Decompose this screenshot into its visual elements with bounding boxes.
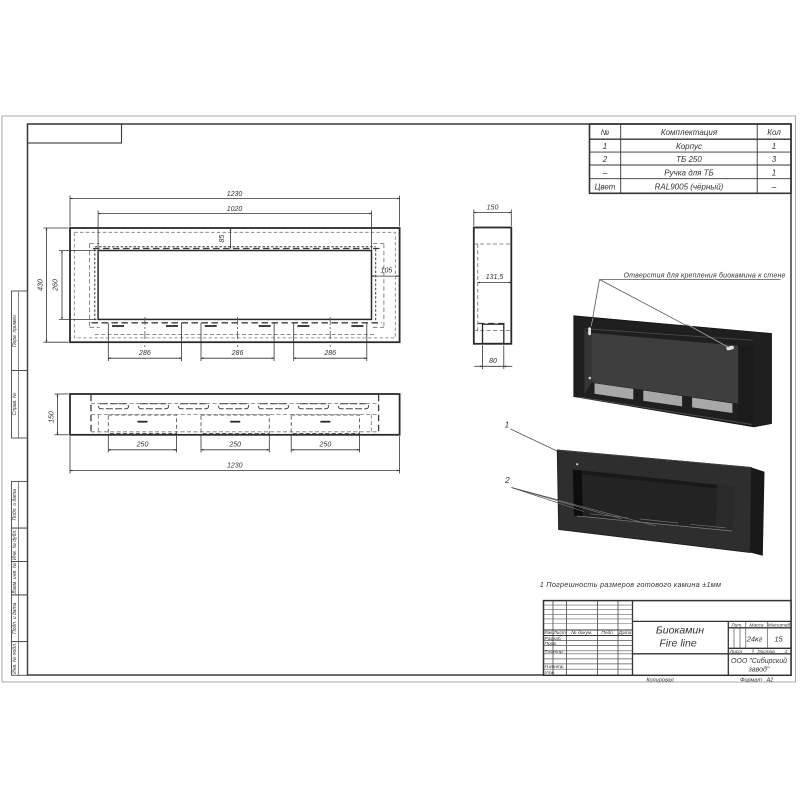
svg-text:15: 15 [774, 635, 783, 644]
svg-text:Разраб.: Разраб. [545, 636, 562, 642]
svg-text:–: – [602, 168, 608, 177]
svg-text:Лист: Лист [729, 649, 742, 655]
svg-text:Инв. № дубл.: Инв. № дубл. [12, 529, 18, 560]
svg-text:Подп.: Подп. [601, 630, 614, 636]
svg-text:1: 1 [772, 168, 776, 177]
svg-text:Формат: Формат [740, 678, 762, 684]
svg-text:ООО "Сибирский: ООО "Сибирский [731, 657, 787, 665]
svg-text:Копировал: Копировал [646, 678, 673, 684]
svg-text:Масса: Масса [749, 623, 764, 629]
svg-text:Утв.: Утв. [545, 670, 556, 676]
svg-text:Подп. и дата: Подп. и дата [12, 602, 18, 634]
svg-text:80: 80 [489, 358, 497, 365]
svg-text:131,5: 131,5 [486, 274, 504, 281]
svg-text:1020: 1020 [227, 206, 243, 213]
svg-text:Масштаб: Масштаб [768, 623, 791, 629]
svg-text:Н.контр.: Н.контр. [545, 664, 565, 670]
svg-text:Корпус: Корпус [676, 142, 702, 151]
svg-text:260: 260 [52, 279, 59, 292]
svg-text:105: 105 [381, 267, 393, 274]
svg-text:150: 150 [49, 411, 56, 423]
svg-text:Дата: Дата [618, 630, 632, 636]
svg-text:150: 150 [487, 205, 499, 212]
svg-text:250: 250 [136, 441, 149, 448]
svg-text:1: 1 [603, 142, 607, 151]
svg-text:1 Погрешность размеров готовог: 1 Погрешность размеров готового камина ±… [540, 580, 722, 589]
svg-text:–: – [771, 183, 777, 192]
svg-text:Подп. и дата: Подп. и дата [12, 489, 18, 521]
svg-text:Пров.: Пров. [545, 641, 558, 647]
svg-text:1230: 1230 [227, 462, 243, 469]
svg-text:3: 3 [772, 155, 777, 164]
svg-text:Инв. № подл.: Инв. № подл. [12, 643, 18, 674]
svg-text:Лит.: Лит. [730, 623, 742, 629]
svg-text:Изм.: Изм. [543, 630, 553, 636]
svg-text:286: 286 [231, 350, 244, 357]
svg-text:Ручка для ТБ: Ручка для ТБ [664, 168, 713, 177]
svg-text:ТБ 250: ТБ 250 [676, 155, 702, 164]
svg-text:286: 286 [323, 350, 336, 357]
svg-text:2: 2 [504, 475, 510, 485]
svg-text:430: 430 [37, 279, 44, 291]
svg-text:Биокамин: Биокамин [656, 625, 704, 637]
svg-text:1: 1 [772, 142, 776, 151]
svg-text:2: 2 [602, 155, 608, 164]
svg-text:RAL9005 (чёрный): RAL9005 (чёрный) [655, 183, 724, 192]
svg-text:А2: А2 [766, 678, 774, 684]
svg-text:Кол: Кол [767, 128, 781, 137]
svg-text:завод": завод" [748, 666, 770, 674]
svg-text:Справ. №: Справ. № [12, 392, 18, 415]
svg-text:Т.контр.: Т.контр. [545, 649, 564, 655]
svg-text:Цвет: Цвет [595, 183, 616, 192]
svg-text:250: 250 [319, 441, 332, 448]
svg-text:286: 286 [138, 350, 151, 357]
svg-text:1: 1 [505, 420, 510, 430]
svg-text:Взам. инв. №: Взам. инв. № [12, 562, 18, 594]
svg-text:Листов: Листов [756, 649, 775, 655]
svg-text:№ докум.: № докум. [571, 630, 592, 636]
svg-text:Отверстия для крепления биокам: Отверстия для крепления биокамина к стен… [624, 272, 786, 280]
svg-text:Комплектация: Комплектация [661, 128, 718, 137]
svg-text:Fire line: Fire line [659, 638, 697, 650]
svg-text:1230: 1230 [227, 191, 243, 198]
svg-text:Перв. примен.: Перв. примен. [12, 314, 18, 347]
svg-text:№: № [601, 128, 610, 137]
svg-text:85: 85 [219, 235, 226, 243]
svg-text:250: 250 [228, 441, 241, 448]
svg-text:24кг: 24кг [746, 635, 763, 644]
svg-text:Лист: Лист [553, 630, 566, 636]
svg-text:1: 1 [785, 649, 788, 655]
